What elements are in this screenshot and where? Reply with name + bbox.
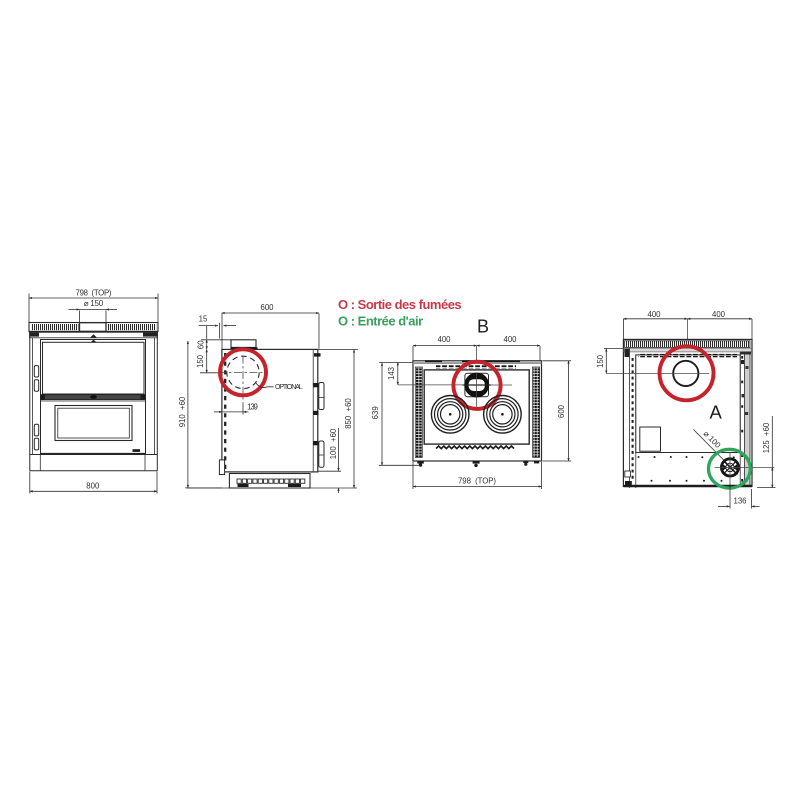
svg-text:910 +60: 910 +60 <box>178 396 187 427</box>
svg-text:OPTIONAL: OPTIONAL <box>275 384 303 391</box>
svg-text:O : Sortie des fumées: O : Sortie des fumées <box>338 297 461 312</box>
svg-text:800: 800 <box>86 482 100 491</box>
svg-text:798 (TOP): 798 (TOP) <box>76 289 112 298</box>
svg-text:A: A <box>710 402 723 423</box>
svg-text:400: 400 <box>712 310 726 319</box>
svg-text:639: 639 <box>371 406 380 419</box>
svg-text:15: 15 <box>199 315 208 324</box>
svg-text:B: B <box>477 317 489 337</box>
svg-text:850 +60: 850 +60 <box>344 398 353 429</box>
svg-text:150: 150 <box>196 354 205 368</box>
svg-text:136: 136 <box>733 497 746 506</box>
svg-text:60: 60 <box>197 340 206 349</box>
svg-text:⌀ 150: ⌀ 150 <box>84 299 104 308</box>
svg-text:139: 139 <box>247 402 258 411</box>
svg-text:400: 400 <box>437 335 451 344</box>
svg-text:143: 143 <box>387 367 396 380</box>
svg-text:400: 400 <box>503 335 517 344</box>
svg-text:600: 600 <box>260 303 274 312</box>
svg-text:400: 400 <box>647 310 661 319</box>
svg-text:150: 150 <box>596 354 605 368</box>
svg-text:100 +60: 100 +60 <box>329 428 338 459</box>
svg-text:125 +60: 125 +60 <box>762 422 771 453</box>
svg-text:O : Entrée d'air: O : Entrée d'air <box>338 314 423 329</box>
svg-text:798 (TOP): 798 (TOP) <box>458 477 496 486</box>
svg-text:600: 600 <box>557 404 566 418</box>
